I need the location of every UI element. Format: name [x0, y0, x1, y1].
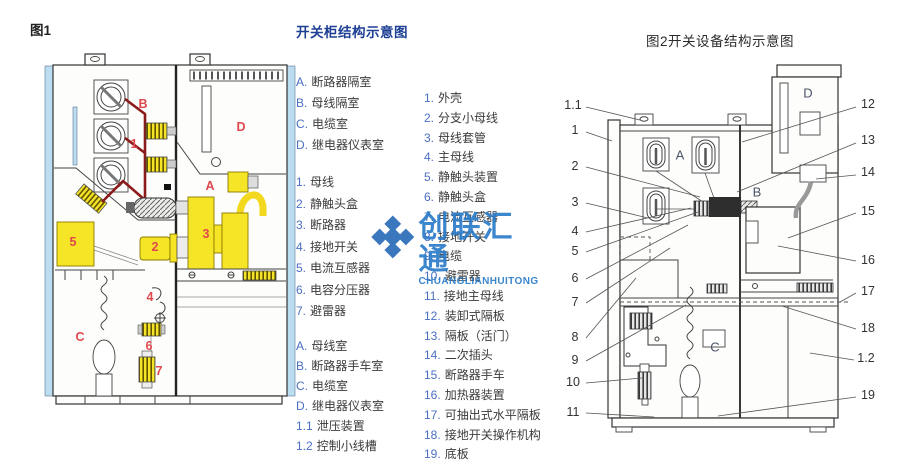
legend-item: 1.2控制小线槽 [296, 436, 384, 456]
legend-item: 12.装卸式隔板 [424, 307, 541, 327]
fig2-arrester [638, 364, 651, 405]
fig2-compartment-legend: A.母线室B.断路器手车室C.电缆室D.继电器仪表室1.1泄压装置1.2控制小线… [296, 336, 384, 456]
legend-item: 2.静触头盒 [296, 194, 370, 216]
legend-item: A.母线室 [296, 336, 384, 356]
legend-item: B.断路器手车室 [296, 356, 384, 376]
legend-item: 6.静触头盒 [424, 188, 541, 208]
legend-item: 6.电容分压器 [296, 280, 370, 302]
legend-item: 4.主母线 [424, 148, 541, 168]
fig2-base-plate [612, 418, 834, 427]
fig1-bushing-insulators [94, 80, 128, 192]
fig1-contact-box [146, 157, 167, 172]
fig1-compartment-legend: A.断路器隔室B.母线隔室C.电缆室D.继电器仪表室 [296, 72, 384, 156]
fig1-lifting-lug [85, 54, 210, 65]
fig2-relay-compartment [772, 65, 841, 173]
figure2-caption: 图2开关设备结构示意图 [646, 30, 794, 50]
watermark-text: 创联汇通 [419, 212, 540, 276]
figure1-diagram: B1DA3254C67 [40, 50, 300, 450]
fig2-heater [797, 283, 833, 292]
fig1-static-contact [140, 234, 195, 262]
fig1-left-side-panel [45, 66, 53, 396]
legend-item: 3.母线套管 [424, 129, 541, 149]
legend-item: 14.二次插头 [424, 346, 541, 366]
legend-item: D.继电器仪表室 [296, 396, 384, 416]
watermark: 创联汇通 CHUANGLIANHUITONG [370, 212, 540, 270]
legend-item: A.断路器隔室 [296, 72, 384, 93]
legend-title: 开关柜结构示意图 [296, 21, 408, 41]
figure2-drawing [548, 55, 888, 470]
legend-item: 4.接地开关 [296, 237, 370, 259]
legend-item: 17.可抽出式水平隔板 [424, 406, 541, 426]
fig2-lifting-lug [635, 114, 746, 125]
legend-item: 1.母线 [296, 172, 370, 194]
legend-item: D.继电器仪表室 [296, 135, 384, 156]
legend-item: 7.避雷器 [296, 301, 370, 323]
fig1-current-transformer [57, 222, 94, 266]
legend-item: 5.电流互感器 [296, 258, 370, 280]
legend-item: 3.断路器 [296, 215, 370, 237]
fig1-contact-box [146, 123, 167, 139]
legend-item: C.电缆室 [296, 376, 384, 396]
legend-item: 11.接地主母线 [424, 287, 541, 307]
legend-item: 15.断路器手车 [424, 366, 541, 386]
figure2-diagram: ABCD 1.11234567891011 121314151617181.21… [548, 55, 888, 470]
watermark-subtext: CHUANGLIANHUITONG [419, 276, 540, 287]
legend-item: B.母线隔室 [296, 93, 384, 114]
legend-item: 1.外壳 [424, 89, 541, 109]
legend-item: 13.隔板（活门） [424, 327, 541, 347]
fig1-base [56, 396, 282, 404]
fig2-outer-wall [608, 120, 620, 418]
legend-item: 1.1泄压装置 [296, 416, 384, 436]
legend-item: 5.静触头装置 [424, 168, 541, 188]
fig2-breaker-handcart [746, 207, 800, 273]
figure1-caption: 图1 [30, 19, 51, 39]
figure1-drawing [40, 50, 300, 450]
fig1-capacitive-divider [142, 323, 161, 336]
fig1-right-side-panel [287, 66, 295, 396]
watermark-logo-icon [370, 212, 416, 260]
legend-item: C.电缆室 [296, 114, 384, 135]
legend-item: 18.接地开关操作机构 [424, 426, 541, 446]
legend-item: 19.底板 [424, 445, 541, 465]
legend-item: 16.加热器装置 [424, 386, 541, 406]
legend-item: 2.分支小母线 [424, 109, 541, 129]
fig1-part-legend: 1.母线2.静触头盒3.断路器4.接地开关5.电流互感器6.电容分压器7.避雷器 [296, 172, 370, 323]
